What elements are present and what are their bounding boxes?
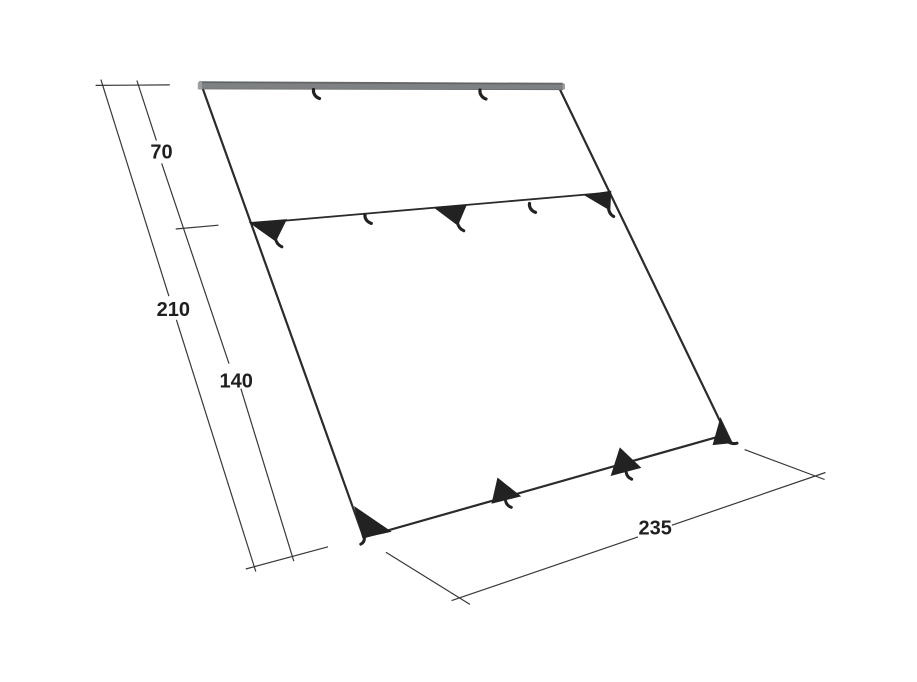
svg-text:235: 235 — [639, 518, 672, 540]
svg-text:210: 210 — [157, 299, 190, 321]
svg-text:70: 70 — [150, 142, 172, 164]
svg-text:140: 140 — [220, 371, 253, 393]
